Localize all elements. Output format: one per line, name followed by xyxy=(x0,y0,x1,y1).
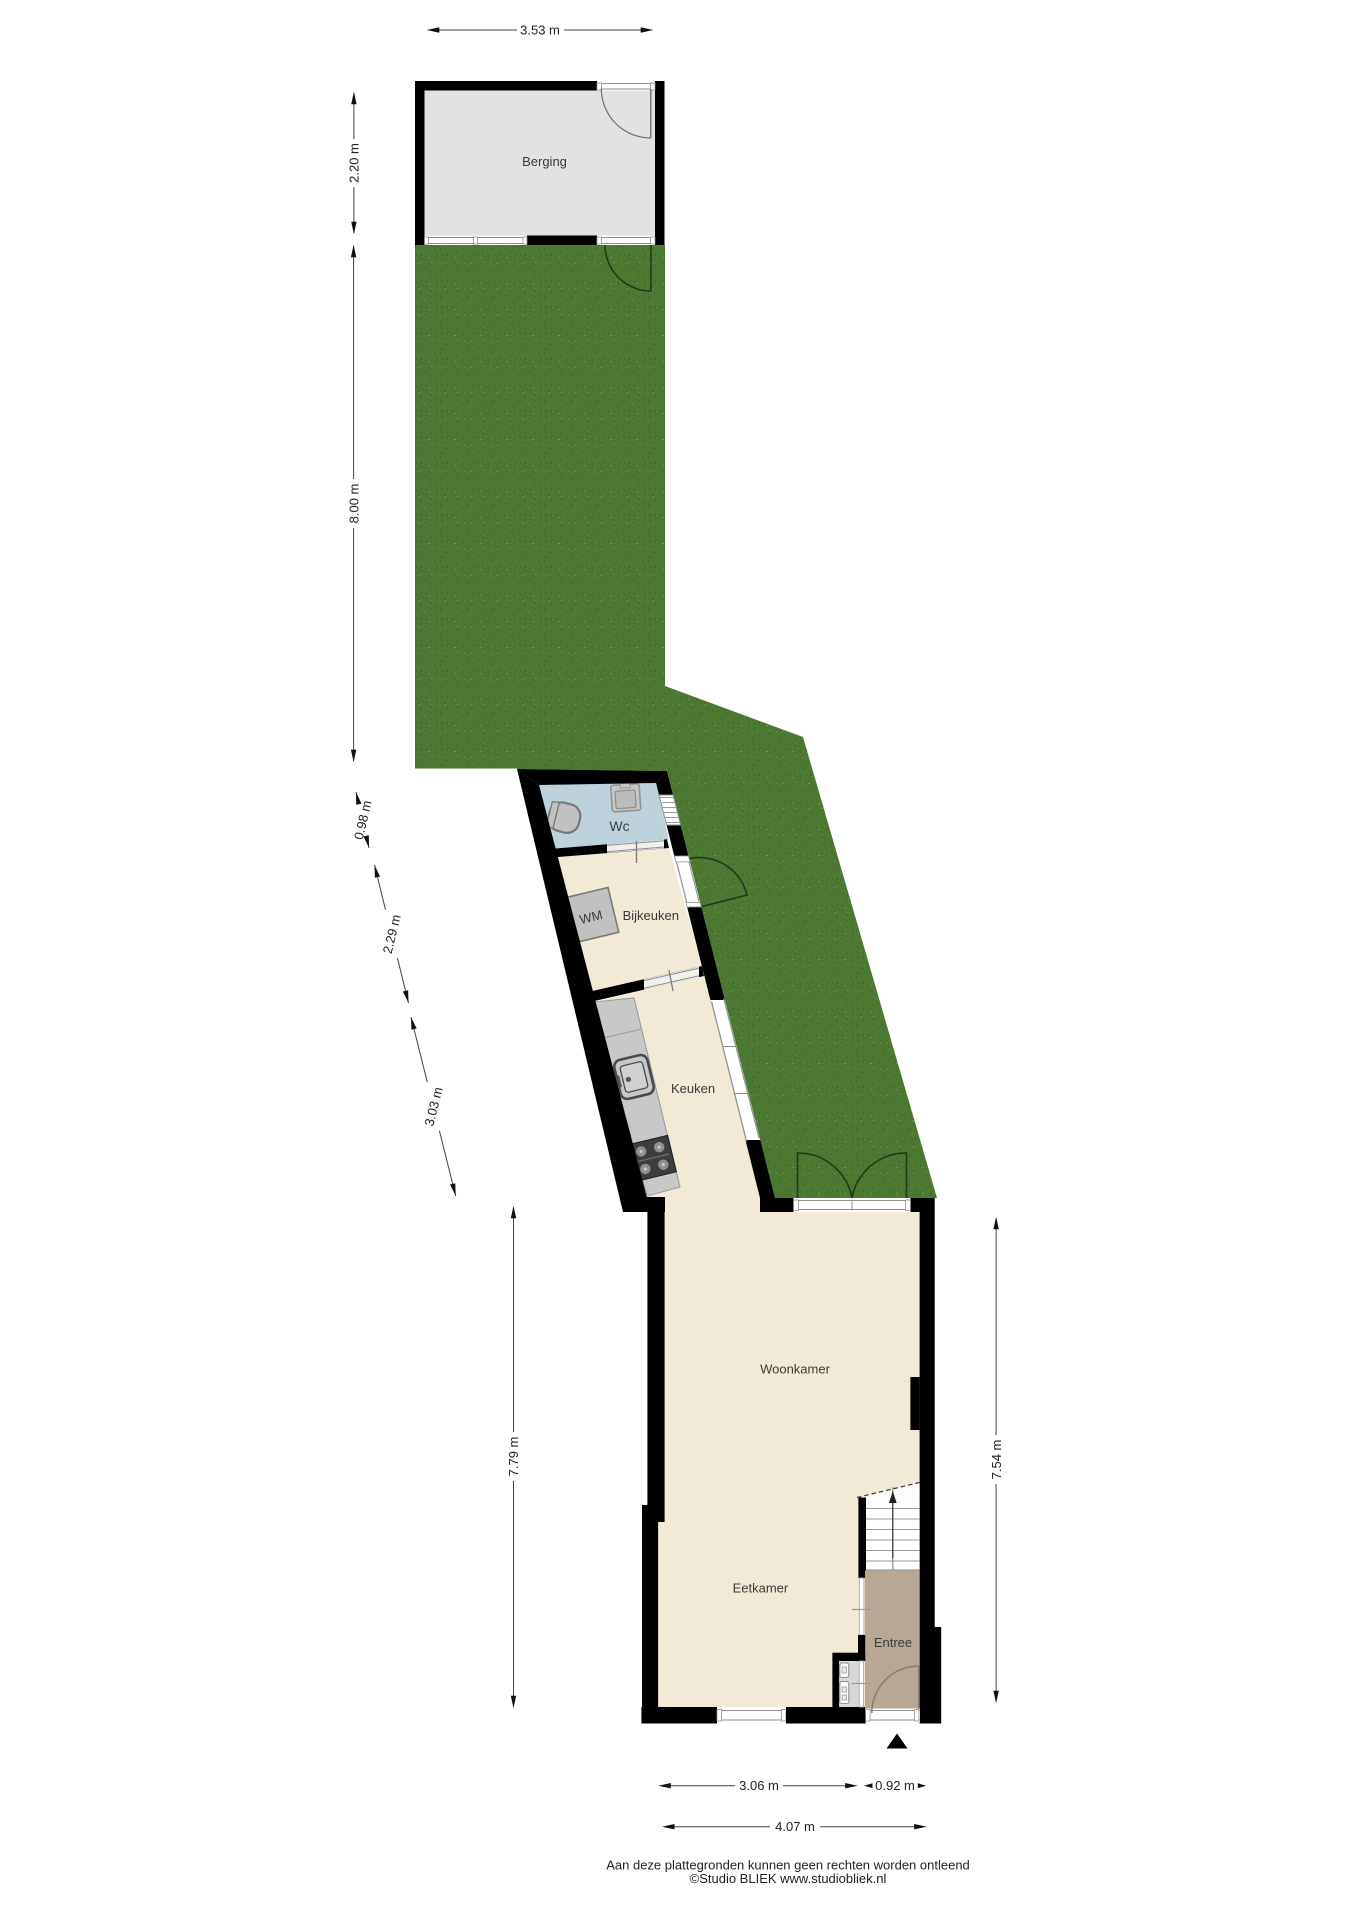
svg-text:Wc: Wc xyxy=(609,818,629,834)
svg-text:Entree: Entree xyxy=(874,1635,912,1650)
svg-text:7.79 m: 7.79 m xyxy=(506,1437,521,1477)
svg-text:Woonkamer: Woonkamer xyxy=(760,1362,831,1377)
svg-text:3.53 m: 3.53 m xyxy=(520,23,560,38)
svg-text:Keuken: Keuken xyxy=(671,1081,715,1096)
svg-text:8.00 m: 8.00 m xyxy=(346,484,361,524)
svg-text:Eetkamer: Eetkamer xyxy=(733,1581,789,1596)
svg-text:4.07 m: 4.07 m xyxy=(775,1819,815,1834)
svg-text:3.06 m: 3.06 m xyxy=(739,1778,779,1793)
svg-text:2.20 m: 2.20 m xyxy=(347,143,362,183)
svg-text:7.54 m: 7.54 m xyxy=(989,1440,1004,1480)
svg-text:Bijkeuken: Bijkeuken xyxy=(623,908,679,923)
svg-text:0.92 m: 0.92 m xyxy=(875,1778,915,1793)
svg-text:Berging: Berging xyxy=(522,154,567,169)
svg-text:©Studio BLIEK www.studiobliek.: ©Studio BLIEK www.studiobliek.nl xyxy=(690,1871,887,1886)
